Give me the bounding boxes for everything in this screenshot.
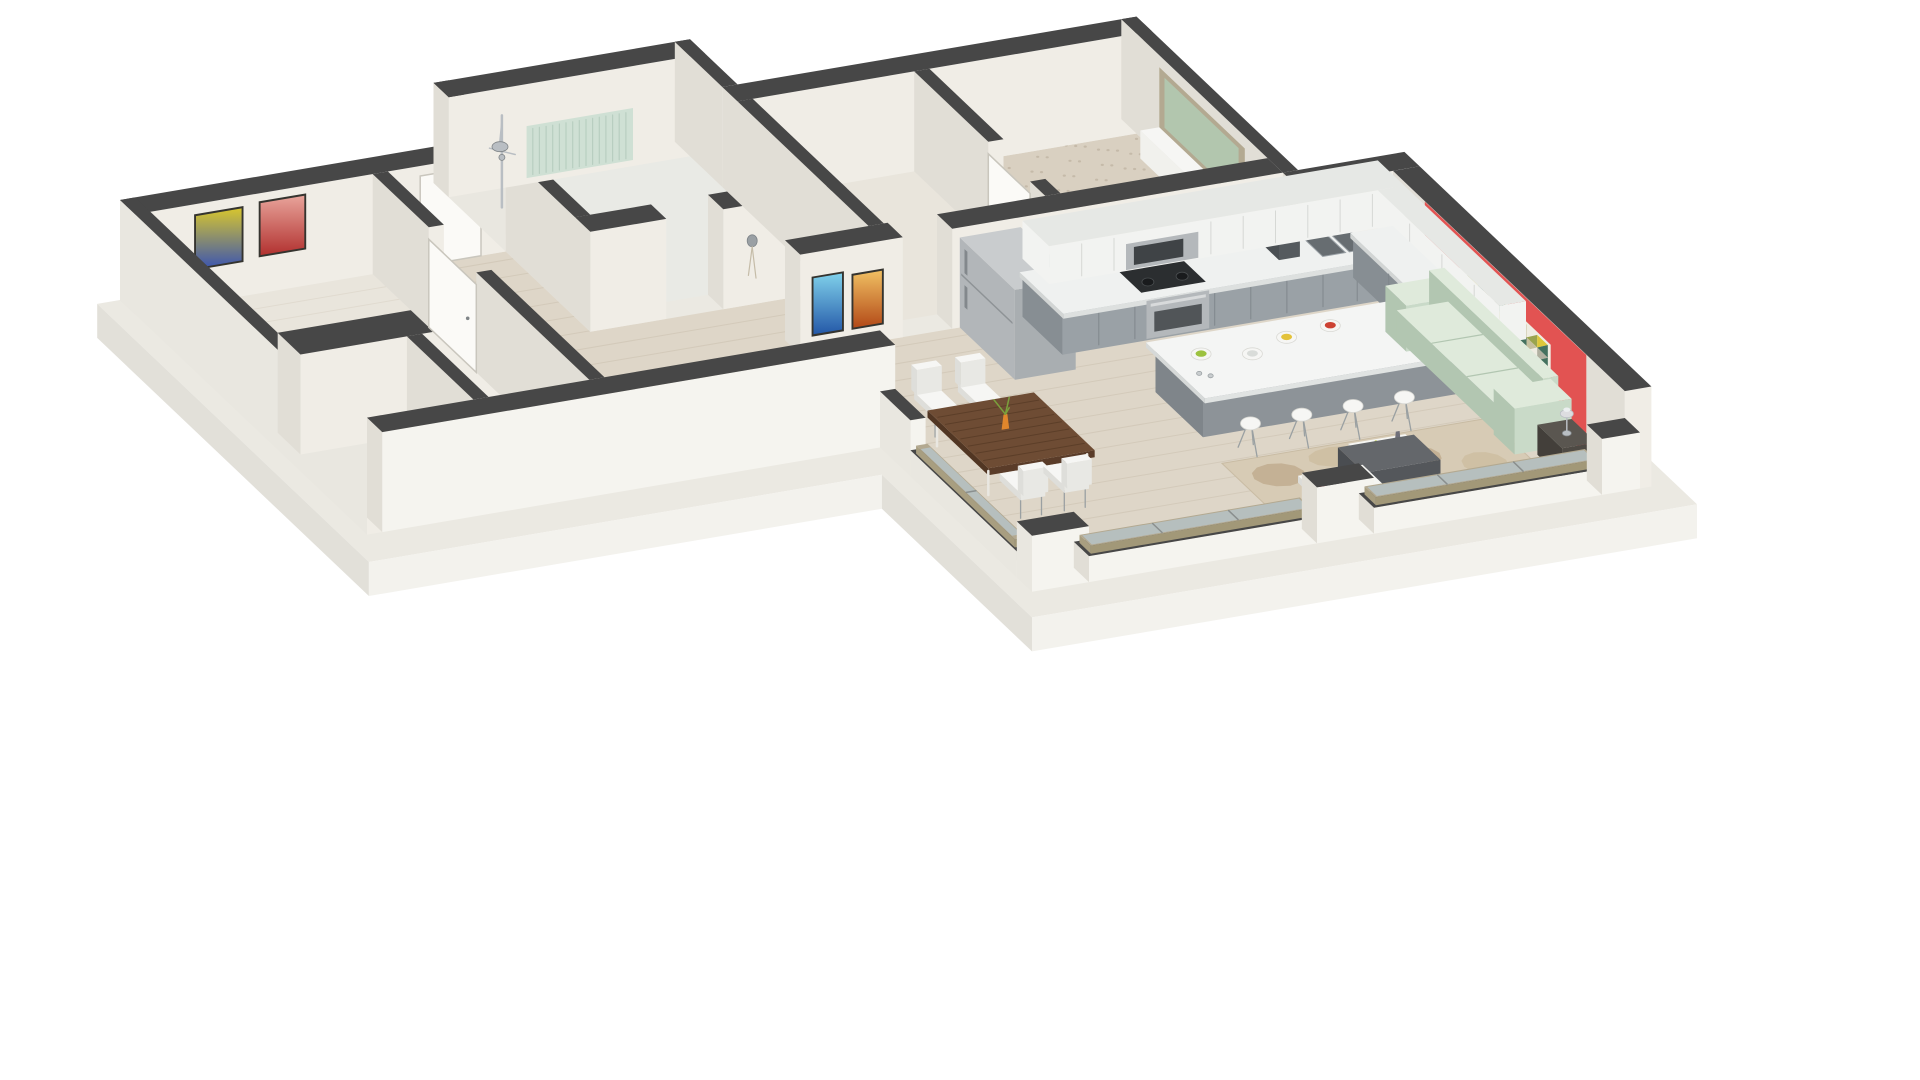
bathroom-south-wall-a (575, 204, 666, 331)
glass-1 (1197, 371, 1202, 375)
burner-4 (1176, 272, 1188, 280)
plate-yellow-flowers (1277, 331, 1297, 343)
plate-salad (1191, 348, 1211, 360)
hall-art-orange (852, 268, 884, 330)
hall-art-blue (812, 271, 844, 337)
plate-fruit (1320, 320, 1340, 332)
window-pier-3 (1587, 418, 1640, 495)
floor-plan-canvas (0, 0, 1920, 1080)
burner-3 (1142, 278, 1154, 286)
glass-2 (1208, 374, 1213, 378)
fridge-handle-bottom (965, 285, 968, 310)
fridge-handle-top (965, 249, 968, 276)
floor-plan-render (0, 0, 1920, 1080)
bedroom1-art-red (259, 193, 307, 257)
plate-flowers (1242, 348, 1262, 360)
